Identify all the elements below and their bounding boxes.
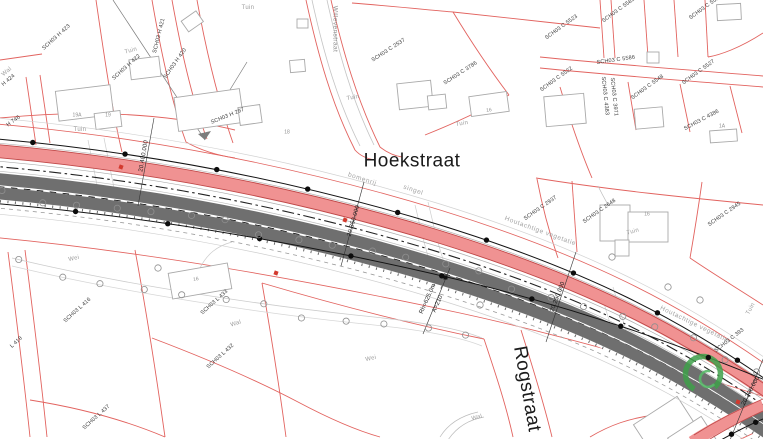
terrain-lines-layer	[12, 0, 631, 439]
map-viewport[interactable]: HoekstraatRogstraatWillevenstraat20.400.…	[0, 0, 763, 439]
boundary-dots-layer	[30, 140, 758, 439]
road-corridor	[0, 117, 763, 439]
map-canvas	[0, 0, 763, 439]
